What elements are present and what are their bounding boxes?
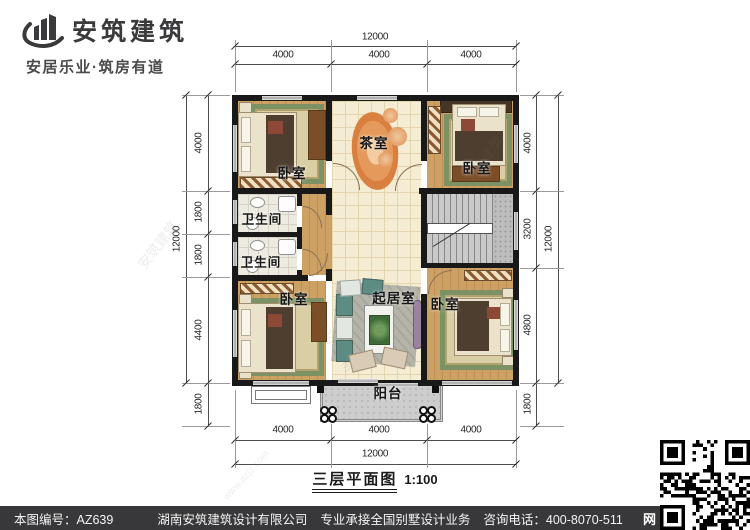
balcony-post [432,386,439,393]
dim-left-seg: 1800 [194,244,205,265]
dim-right-seg: 4000 [523,132,534,153]
drawing-number: 本图编号：AZ639 [14,509,113,528]
qr-code [660,440,750,530]
bed [238,303,296,373]
footer-bar: 本图编号：AZ639 湖南安筑建筑设计有限公司 专业承接全国别墅设计业务 咨询电… [0,506,750,530]
balcony-post [317,386,324,393]
dim-left-seg: 4000 [194,132,205,153]
wardrobe [464,270,512,281]
room-label-bathroom: 卫生间 [241,252,282,271]
sofa [336,294,353,316]
balcony-sliding-door [338,379,378,383]
desk [311,302,327,342]
window [514,300,518,350]
dim-bottom-seg: 4000 [272,425,293,436]
window [233,200,237,224]
tea-cushion [378,152,393,167]
dim-bottom-seg: 4000 [460,425,481,436]
dim-right-seg: 4800 [523,314,534,335]
window [253,381,309,385]
plan-title-row: 三层平面图1:100 [280,468,470,489]
plant [369,315,390,345]
terrace-outline [251,386,311,404]
phone-text: 咨询电话：400-8070-511 [483,509,622,528]
dim-left-seg: 1800 [194,393,205,414]
window [357,96,397,100]
room-label-bedroom: 卧室 [463,157,492,177]
floor-plan: 卧室 茶室 卧室 卫生间 卫生间 卧室 起居室 卧室 阳台 12000 4000… [0,0,750,530]
tea-cushion [383,108,398,123]
window [233,310,237,357]
tea-cushion [388,127,407,146]
web-badge: 网 [643,509,656,528]
sink [250,240,265,251]
window [442,381,512,385]
room-label-bedroom: 卧室 [278,162,307,182]
watermark-url: www.azjz.com [221,448,272,502]
sofa [339,279,361,296]
window [514,125,518,163]
dim-bottom-overall: 12000 [362,449,388,460]
dim-top-seg: 4000 [460,50,481,61]
bed [454,298,512,356]
dim-right-seg: 3200 [523,218,534,239]
wardrobe [428,106,441,154]
dim-right-overall: 12000 [544,226,555,252]
room-label-bedroom: 卧室 [280,288,309,308]
room-label-bedroom: 卧室 [431,293,460,313]
window [514,212,518,250]
sink [250,197,265,208]
dim-bottom-seg: 4000 [368,425,389,436]
plan-scale: 1:100 [404,472,437,487]
window [233,125,237,172]
dim-top-seg: 4000 [272,50,293,61]
room-label-bathroom: 卫生间 [242,209,283,228]
window [262,96,302,100]
sofa [336,317,353,339]
room-label-tea-room: 茶室 [360,132,389,152]
dim-right-seg: 1800 [523,393,534,414]
company-name: 湖南安筑建筑设计有限公司 [157,509,307,528]
coffee-table [364,305,394,354]
dim-left-seg: 4400 [194,319,205,340]
staircase [427,194,513,263]
desk [308,110,326,160]
balcony-column-cluster [320,406,337,423]
service-text: 专业承接全国别墅设计业务 [320,509,470,528]
room-label-balcony: 阳台 [374,382,403,402]
balcony-column-cluster [419,406,436,423]
dim-top-seg: 4000 [368,50,389,61]
dim-left-overall: 12000 [172,226,183,252]
page: 安筑建筑 安居乐业·筑房有道 [0,0,750,530]
plan-title: 三层平面图 [312,471,397,493]
dim-left-seg: 1800 [194,201,205,222]
room-label-living: 起居室 [372,287,416,307]
dim-top-overall: 12000 [362,32,388,43]
window [233,242,237,266]
